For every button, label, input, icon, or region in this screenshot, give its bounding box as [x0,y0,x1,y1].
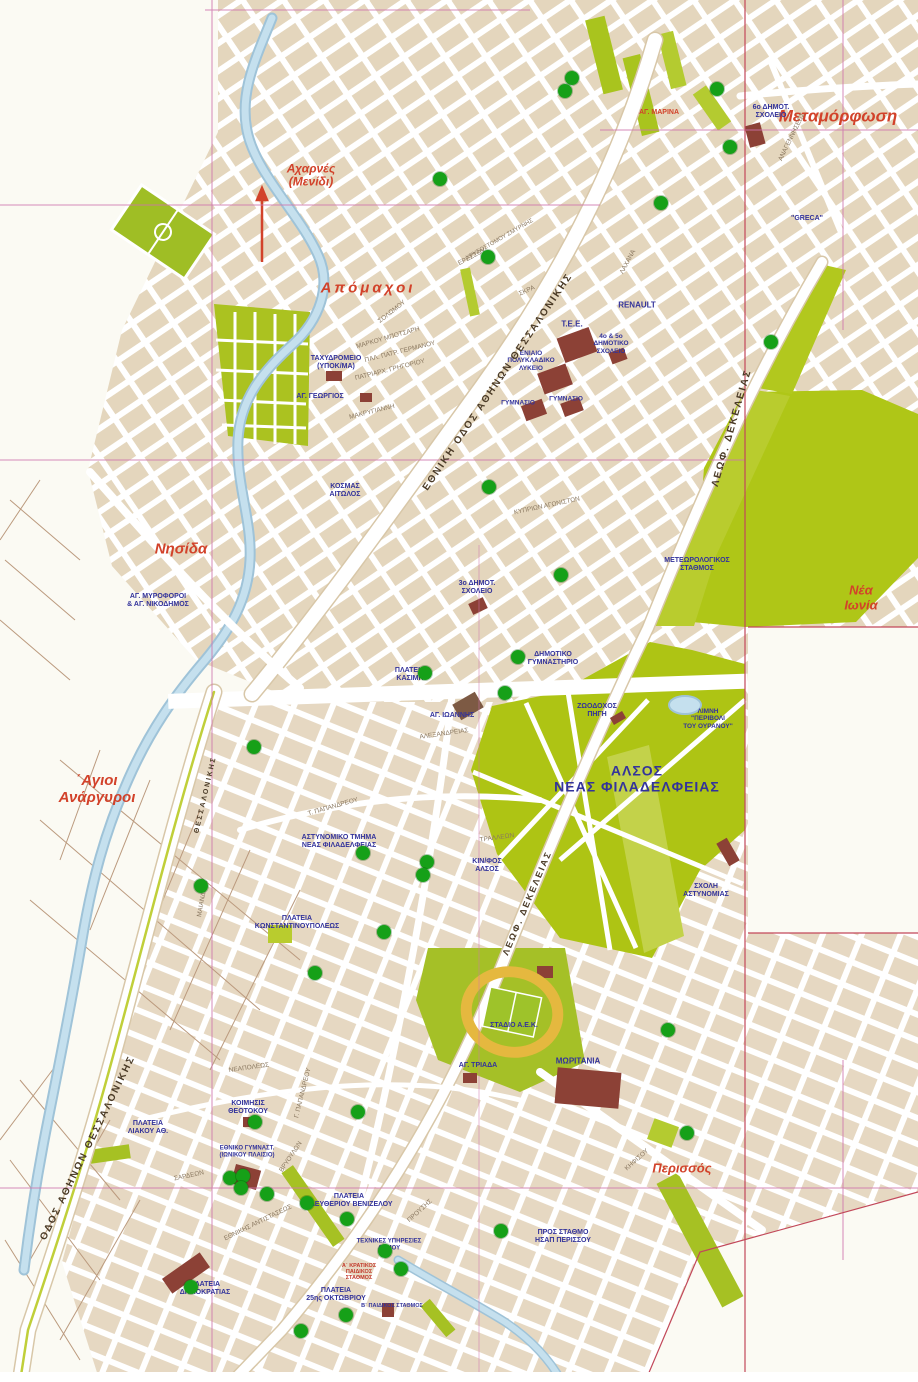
poi-marker[interactable] [482,480,496,494]
poi-marker[interactable] [565,71,579,85]
poi-marker[interactable] [433,172,447,186]
poi-marker[interactable] [300,1196,314,1210]
poi-marker[interactable] [377,925,391,939]
poi-marker[interactable] [234,1181,248,1195]
poi-marker[interactable] [511,650,525,664]
city-map: ΜεταμόρφωσηΑχαρνές (Μενίδι)ΑπόμαχοιΝησίδ… [0,0,918,1382]
poi-marker[interactable] [260,1187,274,1201]
poi-marker[interactable] [680,1126,694,1140]
poi-marker[interactable] [308,966,322,980]
poi-marker[interactable] [554,568,568,582]
poi-marker[interactable] [416,868,430,882]
poi-marker[interactable] [498,686,512,700]
poi-marker[interactable] [340,1212,354,1226]
poi-marker[interactable] [248,1115,262,1129]
poi-marker[interactable] [654,196,668,210]
poi-marker[interactable] [356,846,370,860]
poi-marker[interactable] [339,1308,353,1322]
poi-marker[interactable] [420,855,434,869]
poi-marker[interactable] [481,250,495,264]
poi-marker[interactable] [764,335,778,349]
poi-marker[interactable] [351,1105,365,1119]
poi-marker[interactable] [378,1244,392,1258]
poi-marker[interactable] [394,1262,408,1276]
poi-marker[interactable] [710,82,724,96]
poi-marker[interactable] [194,879,208,893]
poi-marker[interactable] [184,1280,198,1294]
poi-marker[interactable] [418,666,432,680]
poi-marker[interactable] [723,140,737,154]
poi-marker[interactable] [661,1023,675,1037]
poi-marker[interactable] [558,84,572,98]
poi-marker[interactable] [494,1224,508,1238]
map-markers-layer [0,0,918,1382]
poi-marker[interactable] [294,1324,308,1338]
poi-marker[interactable] [247,740,261,754]
